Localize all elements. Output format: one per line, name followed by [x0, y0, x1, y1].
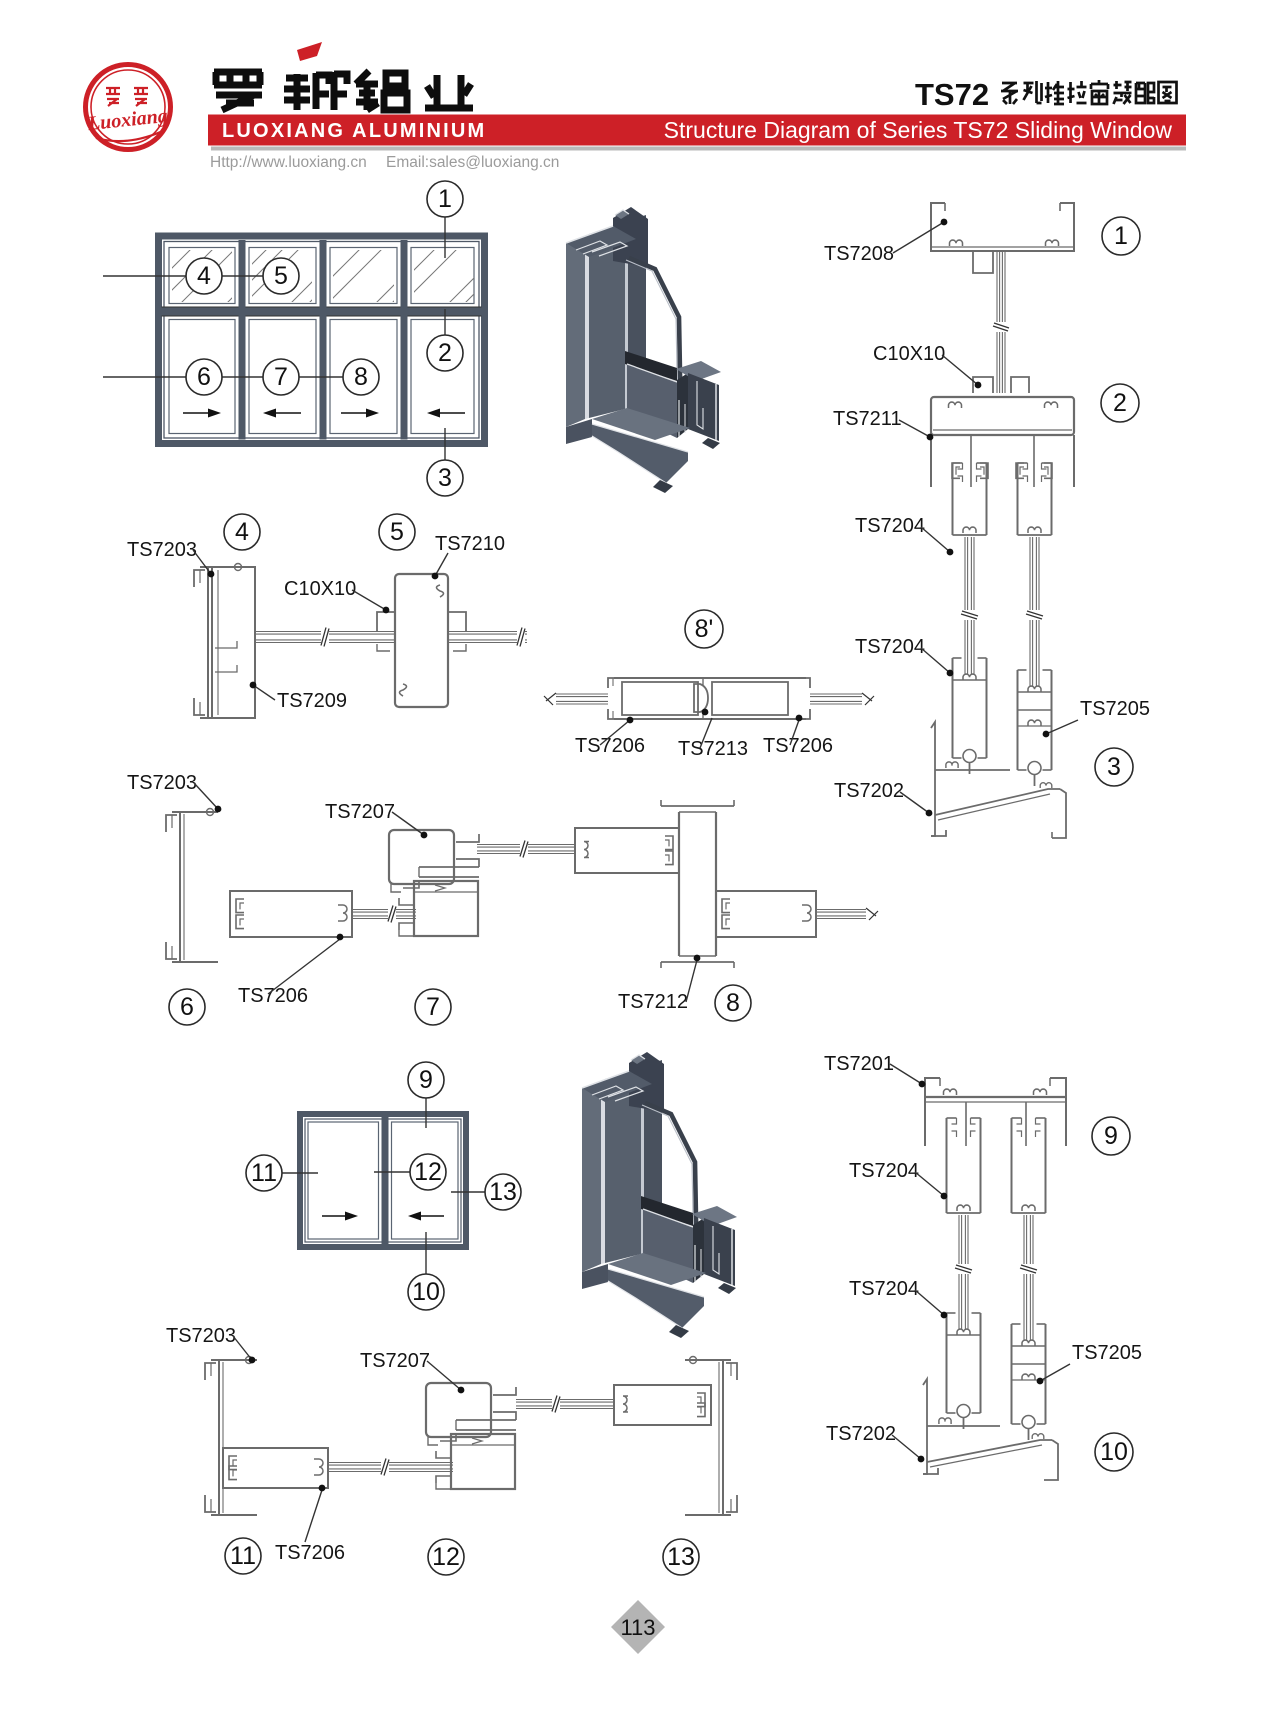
svg-text:12: 12	[414, 1158, 442, 1186]
svg-text:TS7206: TS7206	[238, 985, 308, 1007]
svg-text:TS7207: TS7207	[325, 801, 395, 823]
svg-text:1: 1	[1114, 222, 1128, 250]
svg-text:8: 8	[726, 989, 740, 1017]
svg-text:TS7205: TS7205	[1072, 1342, 1142, 1364]
svg-text:10: 10	[1100, 1438, 1128, 1466]
svg-text:TS7210: TS7210	[435, 533, 505, 555]
svg-text:TS7204: TS7204	[849, 1160, 919, 1182]
svg-text:TS7202: TS7202	[834, 780, 904, 802]
svg-text:Email:sales@luoxiang.cn: Email:sales@luoxiang.cn	[386, 154, 559, 171]
svg-text:10: 10	[412, 1278, 440, 1306]
svg-text:TS7206: TS7206	[575, 735, 645, 757]
svg-text:13: 13	[667, 1543, 695, 1571]
svg-text:3: 3	[1107, 753, 1121, 781]
svg-text:4: 4	[235, 518, 249, 546]
svg-text:LUOXIANG ALUMINIUM: LUOXIANG ALUMINIUM	[222, 120, 486, 142]
svg-text:3: 3	[438, 464, 452, 492]
svg-text:TS7203: TS7203	[166, 1325, 236, 1347]
svg-text:TS7209: TS7209	[277, 690, 347, 712]
svg-text:TS7204: TS7204	[855, 636, 925, 658]
svg-text:7: 7	[426, 993, 440, 1021]
svg-text:7: 7	[274, 363, 288, 391]
svg-text:TS7202: TS7202	[826, 1423, 896, 1445]
svg-text:4: 4	[197, 262, 211, 290]
svg-text:13: 13	[489, 1178, 517, 1206]
svg-text:TS7213: TS7213	[678, 738, 748, 760]
svg-text:2: 2	[1113, 389, 1127, 417]
svg-text:TS7204: TS7204	[855, 515, 925, 537]
svg-text:Structure Diagram of Series TS: Structure Diagram of Series TS72 Sliding…	[664, 117, 1173, 143]
svg-text:6: 6	[180, 993, 194, 1021]
svg-text:9: 9	[1104, 1122, 1118, 1150]
svg-text:11: 11	[230, 1542, 256, 1570]
svg-text:5: 5	[390, 518, 404, 546]
svg-text:TS7204: TS7204	[849, 1278, 919, 1300]
svg-text:TS7201: TS7201	[824, 1053, 894, 1075]
svg-text:TS7208: TS7208	[824, 243, 894, 265]
svg-text:TS7207: TS7207	[360, 1350, 430, 1372]
svg-text:TS7206: TS7206	[275, 1542, 345, 1564]
svg-text:12: 12	[432, 1543, 460, 1571]
svg-text:8: 8	[354, 363, 368, 391]
svg-text:TS7203: TS7203	[127, 539, 197, 561]
svg-text:TS7205: TS7205	[1080, 698, 1150, 720]
svg-text:5: 5	[274, 262, 288, 290]
svg-text:Http://www.luoxiang.cn: Http://www.luoxiang.cn	[210, 154, 367, 171]
svg-text:TS7212: TS7212	[618, 991, 688, 1013]
svg-text:2: 2	[438, 339, 452, 367]
svg-text:6: 6	[197, 363, 211, 391]
svg-text:C10X10: C10X10	[284, 578, 356, 600]
svg-text:TS7203: TS7203	[127, 772, 197, 794]
svg-text:113: 113	[620, 1615, 655, 1640]
svg-text:9: 9	[419, 1066, 433, 1094]
svg-text:8': 8'	[695, 615, 714, 643]
svg-text:C10X10: C10X10	[873, 343, 945, 365]
svg-text:TS72: TS72	[915, 77, 989, 112]
svg-text:11: 11	[251, 1159, 277, 1187]
svg-text:TS7206: TS7206	[763, 735, 833, 757]
svg-text:TS7211: TS7211	[833, 408, 902, 430]
svg-text:1: 1	[438, 185, 452, 213]
